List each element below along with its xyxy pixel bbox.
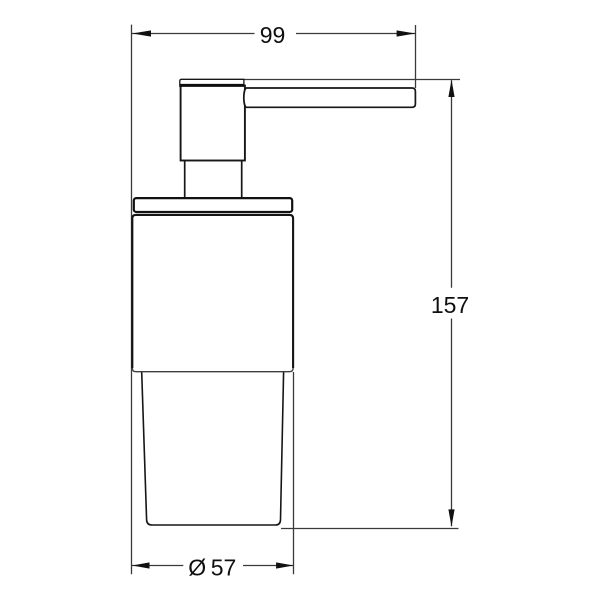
svg-text:99: 99 xyxy=(260,22,286,48)
svg-text:157: 157 xyxy=(431,292,469,318)
svg-text:Ø 57: Ø 57 xyxy=(188,554,236,580)
